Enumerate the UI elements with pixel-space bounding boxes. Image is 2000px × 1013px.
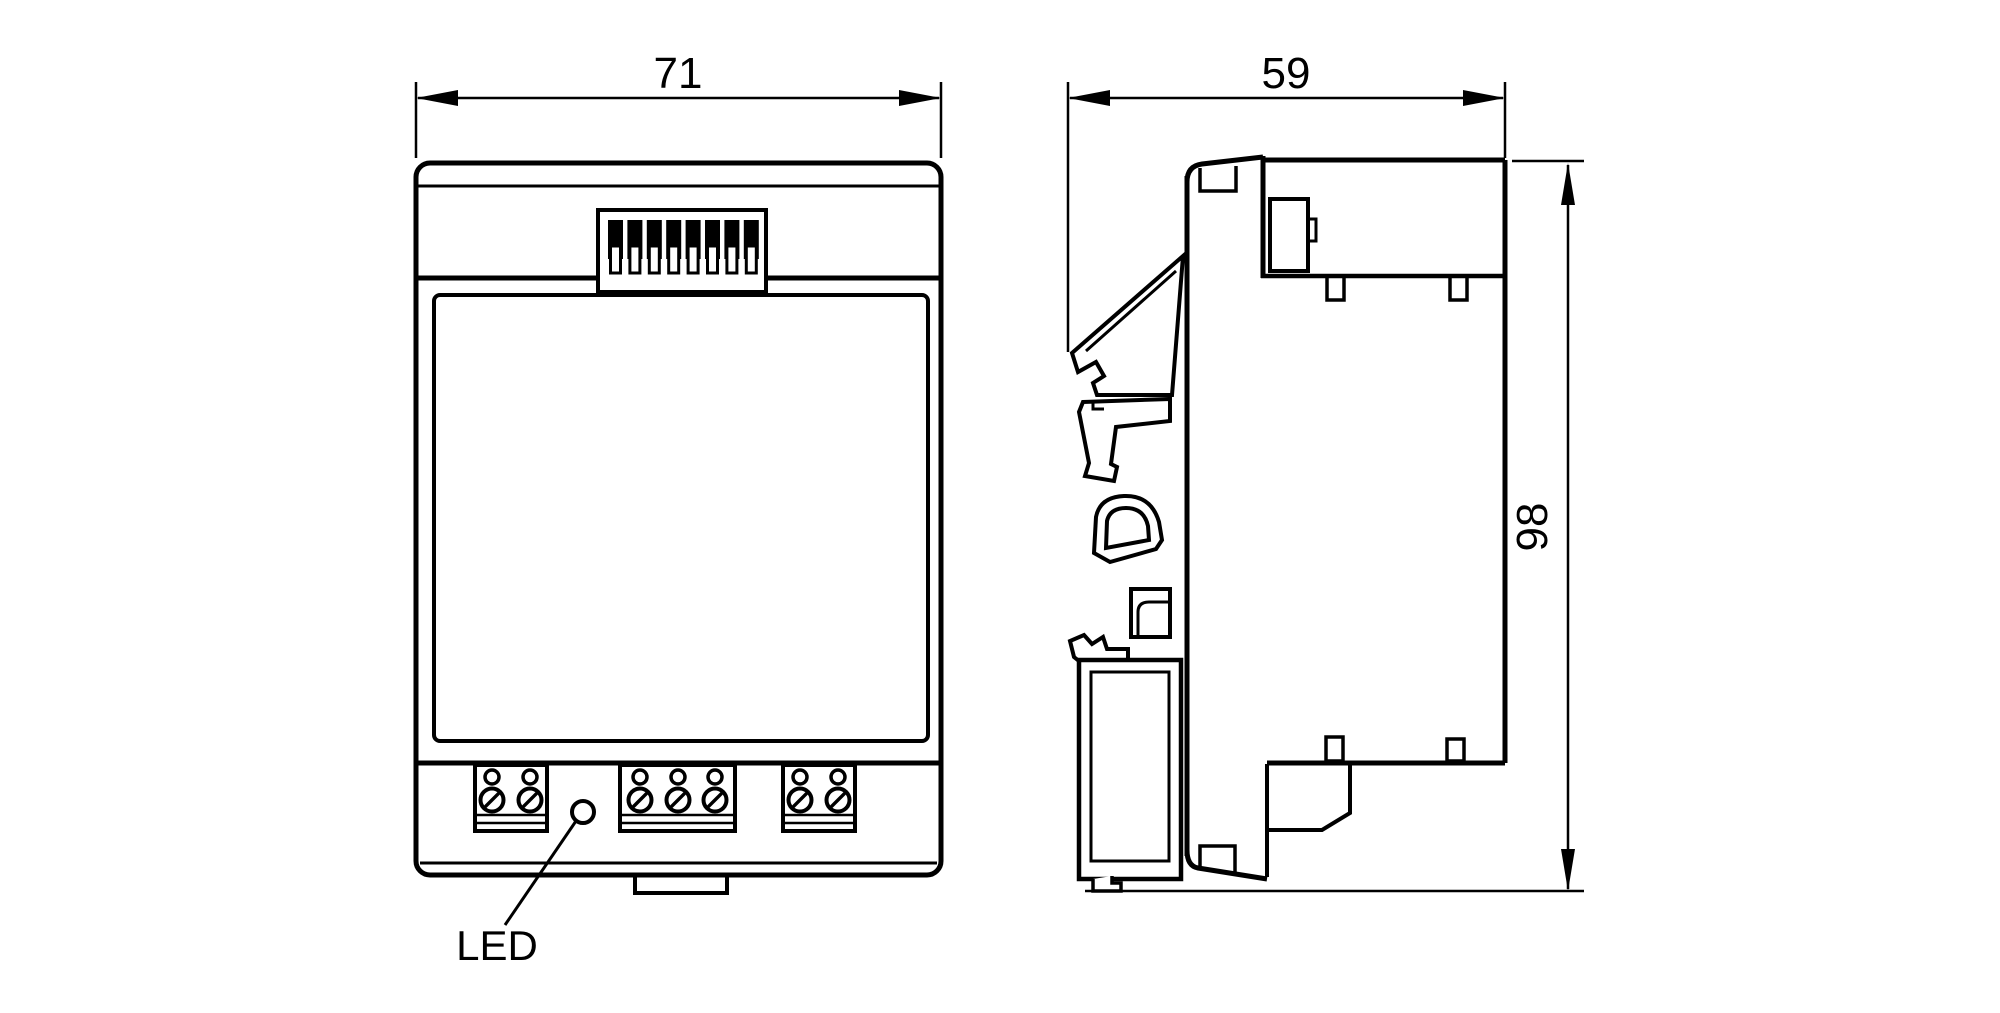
clip-lower-slider[interactable] bbox=[1079, 660, 1181, 879]
top-groove-notch bbox=[1200, 166, 1236, 191]
dip-switch[interactable] bbox=[608, 220, 623, 273]
din-rail-clip bbox=[1070, 256, 1183, 891]
terminal-screw-slot-icon bbox=[670, 792, 686, 808]
dip-switch-actuator[interactable] bbox=[746, 246, 756, 273]
terminal-screw-slot-icon bbox=[792, 792, 808, 808]
terminal-group bbox=[475, 765, 547, 831]
front-view: 71 LED bbox=[416, 49, 941, 969]
bottom-tab bbox=[635, 876, 727, 893]
arrowhead-left-icon bbox=[1068, 90, 1110, 106]
terminal-group bbox=[783, 765, 855, 831]
terminal-wire-port-icon bbox=[671, 770, 685, 784]
arrowhead-left-icon bbox=[416, 90, 458, 106]
dimension-width-71: 71 bbox=[416, 49, 941, 158]
dip-switch-actuator[interactable] bbox=[649, 246, 659, 273]
terminal-wire-port-icon bbox=[523, 770, 537, 784]
dip-switch-actuator[interactable] bbox=[630, 246, 640, 273]
clip-release-lever bbox=[1079, 399, 1170, 481]
dimensional-drawing-canvas: 71 LED 59 bbox=[0, 0, 2000, 1013]
dip-switch[interactable] bbox=[744, 220, 759, 273]
dip-switch-actuator[interactable] bbox=[669, 246, 679, 273]
dip-switch-block bbox=[598, 210, 766, 292]
screw-terminal[interactable] bbox=[629, 770, 652, 812]
dip-switch-actuator[interactable] bbox=[708, 246, 718, 273]
screw-terminal[interactable] bbox=[519, 770, 542, 812]
front-plate bbox=[434, 295, 928, 741]
technical-drawing: 71 LED 59 bbox=[0, 0, 2000, 1013]
terminal-screw-slot-icon bbox=[484, 792, 500, 808]
terminal-screw-slot-icon bbox=[522, 792, 538, 808]
dip-switch-actuator[interactable] bbox=[688, 246, 698, 273]
upper-guide-tab bbox=[1450, 276, 1467, 300]
lower-guide-tab bbox=[1447, 739, 1464, 761]
dip-switch-side-nub bbox=[1308, 219, 1316, 241]
dip-switch-frame bbox=[598, 210, 766, 292]
screw-terminal[interactable] bbox=[789, 770, 812, 812]
dip-switch[interactable] bbox=[724, 220, 739, 273]
dip-switch[interactable] bbox=[666, 220, 681, 273]
terminal-block-profile bbox=[1267, 764, 1350, 830]
dip-switch[interactable] bbox=[627, 220, 642, 273]
dip-switch-actuator[interactable] bbox=[727, 246, 737, 273]
screw-terminal[interactable] bbox=[481, 770, 504, 812]
dip-switch-actuator[interactable] bbox=[611, 246, 621, 273]
terminal-wire-port-icon bbox=[708, 770, 722, 784]
dip-switch[interactable] bbox=[705, 220, 720, 273]
terminal-screw-slot-icon bbox=[707, 792, 723, 808]
terminal-wire-port-icon bbox=[831, 770, 845, 784]
lower-guide-tab bbox=[1326, 737, 1343, 761]
terminal-screw-slot-icon bbox=[830, 792, 846, 808]
dip-switch[interactable] bbox=[686, 220, 701, 273]
arrowhead-right-icon bbox=[899, 90, 941, 106]
arrowhead-right-icon bbox=[1463, 90, 1505, 106]
dimension-label-depth: 59 bbox=[1262, 49, 1311, 98]
dip-switch[interactable] bbox=[647, 220, 662, 273]
dimension-label-height: 98 bbox=[1508, 503, 1557, 552]
led-indicator bbox=[572, 801, 594, 823]
arrowhead-down-icon bbox=[1561, 849, 1575, 891]
terminal-wire-port-icon bbox=[793, 770, 807, 784]
terminal-groups[interactable] bbox=[475, 765, 855, 831]
led-label: LED bbox=[456, 922, 538, 969]
screw-terminal[interactable] bbox=[667, 770, 690, 812]
dimension-label-width: 71 bbox=[654, 49, 703, 98]
terminal-wire-port-icon bbox=[633, 770, 647, 784]
side-housing-profile bbox=[1187, 156, 1505, 879]
upper-guide-tab bbox=[1327, 276, 1344, 300]
clip-spring-hook[interactable] bbox=[1094, 496, 1162, 562]
screw-terminal[interactable] bbox=[704, 770, 727, 812]
dip-switch-side-profile bbox=[1270, 199, 1308, 271]
clip-upper-bracket bbox=[1072, 256, 1183, 395]
terminal-screw-slot-icon bbox=[632, 792, 648, 808]
side-view: 59 98 bbox=[1068, 49, 1584, 891]
terminal-group bbox=[620, 765, 735, 831]
screw-terminal[interactable] bbox=[827, 770, 850, 812]
terminal-wire-port-icon bbox=[485, 770, 499, 784]
clip-lower-hook bbox=[1070, 635, 1128, 661]
arrowhead-up-icon bbox=[1561, 163, 1575, 205]
